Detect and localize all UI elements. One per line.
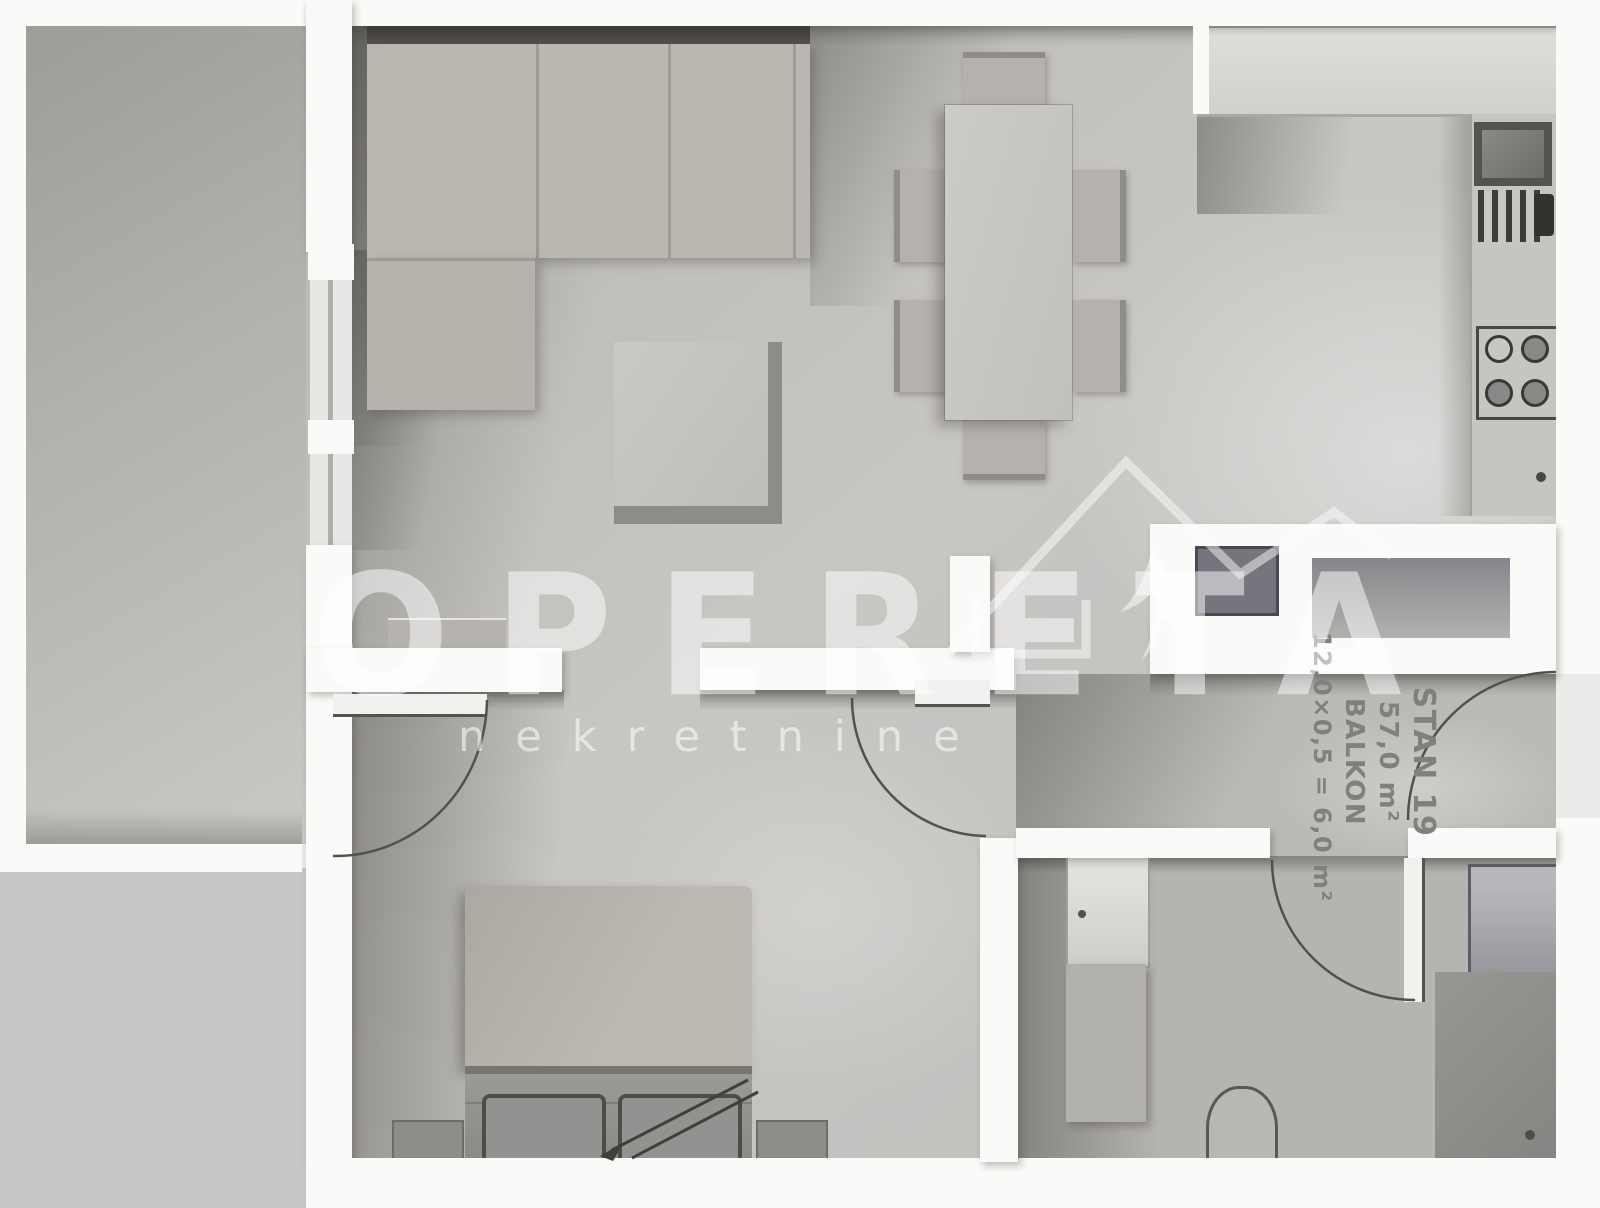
floor-plan-image: STAN 19 57,0 m² BALKON 12,0×0,5 = 6,0 m²… xyxy=(0,0,1600,1208)
watermark-tagline: nekretnine xyxy=(458,716,990,759)
blanket-fold-line xyxy=(612,1080,748,1150)
blanket-fold-tip xyxy=(600,1142,624,1161)
blanket-fold-line xyxy=(632,1092,758,1158)
watermark-brand: OPERETA xyxy=(312,553,1446,721)
